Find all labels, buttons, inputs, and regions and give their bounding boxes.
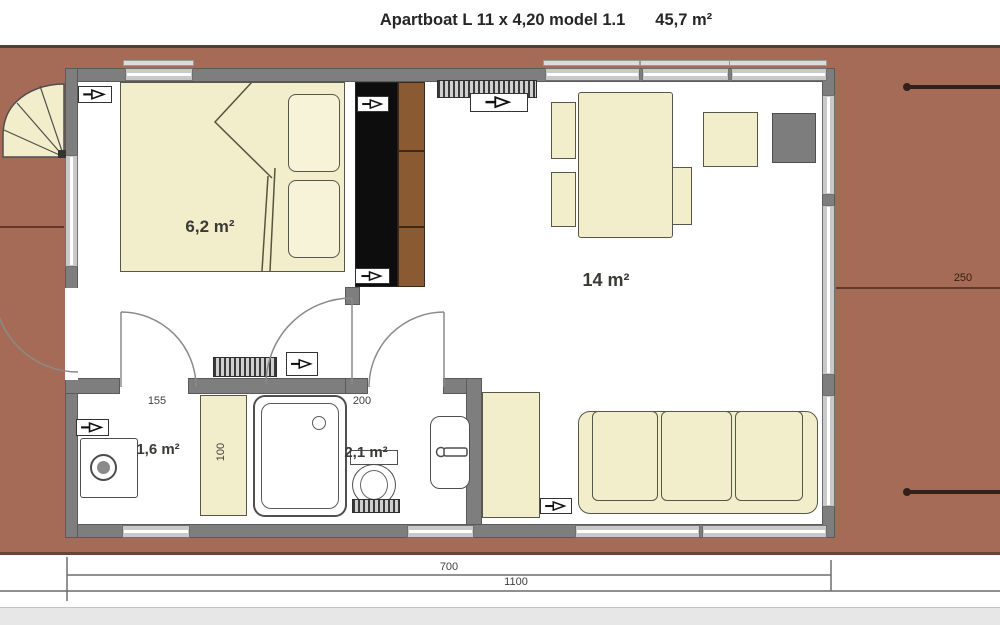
bedroom-area-label: 6,2 m²: [160, 217, 260, 237]
window: [407, 525, 474, 538]
radiator-icon: [213, 357, 277, 377]
window-sill: [640, 60, 730, 66]
window: [545, 68, 640, 81]
window: [65, 155, 78, 267]
wall-stub: [345, 287, 360, 305]
shelf-divider: [398, 226, 425, 228]
interior-wall-segment: [345, 378, 368, 394]
interior-wall-segment: [65, 378, 120, 394]
power-outlet-icon: [540, 498, 572, 514]
side-table: [703, 112, 758, 167]
window: [822, 395, 835, 507]
wardrobe-shelves: [398, 82, 425, 287]
window: [731, 68, 827, 81]
power-outlet-icon: [286, 352, 318, 376]
power-outlet-icon: [76, 419, 109, 436]
sofa-cushion: [592, 411, 658, 501]
window: [125, 68, 193, 81]
window-sill: [543, 60, 640, 66]
shelf-divider: [398, 150, 425, 152]
shower-drain-icon: [312, 416, 326, 430]
dock-band: [0, 607, 1000, 625]
stove-unit: [772, 113, 816, 163]
wardrobe: [355, 82, 398, 287]
window: [122, 525, 190, 538]
dimension-total-length: 1100: [486, 576, 546, 588]
hull-baseline: [0, 590, 1000, 592]
pillow: [288, 180, 340, 258]
floorplan-page: Apartboat L 11 x 4,20 model 1.145,7 m²: [0, 0, 1000, 625]
window: [642, 68, 729, 81]
power-outlet-icon: [78, 86, 112, 103]
sofa-cushion: [661, 411, 732, 501]
total-area: 45,7 m²: [655, 11, 712, 29]
tall-cabinet: [482, 392, 540, 518]
utility-area-label: 1,6 m²: [108, 441, 208, 458]
window: [702, 525, 827, 538]
dimension-closet-depth: 100: [215, 427, 231, 477]
toilet-bowl-inner: [360, 470, 388, 500]
window-sill: [123, 60, 194, 66]
chair: [551, 102, 576, 159]
radiator-icon: [352, 499, 400, 513]
model-name: Apartboat L 11 x 4,20 model 1.1: [380, 11, 625, 29]
chair: [551, 172, 576, 227]
washer-drum: [97, 461, 110, 474]
dimension-bathroom-width: 200: [337, 395, 387, 407]
window: [822, 205, 835, 375]
entrance-opening: [65, 288, 78, 380]
plan-title: Apartboat L 11 x 4,20 model 1.145,7 m²: [92, 11, 1000, 30]
window: [822, 95, 835, 195]
dimension-utility-width: 155: [132, 395, 182, 407]
interior-wall-segment: [188, 378, 348, 394]
chair: [672, 167, 692, 225]
bathroom-area-label: 2,1 m²: [316, 444, 416, 461]
dimension-interior-length: 700: [419, 561, 479, 573]
sofa-cushion: [735, 411, 803, 501]
dining-table: [578, 92, 673, 238]
pillow: [288, 94, 340, 172]
window-sill: [729, 60, 827, 66]
power-outlet-icon: [357, 96, 389, 112]
dimension-aft-deck: 250: [933, 272, 993, 284]
power-outlet-icon: [470, 93, 528, 112]
window: [575, 525, 700, 538]
living-area-label: 14 m²: [556, 270, 656, 291]
sink: [430, 416, 470, 489]
power-outlet-icon: [355, 268, 390, 284]
